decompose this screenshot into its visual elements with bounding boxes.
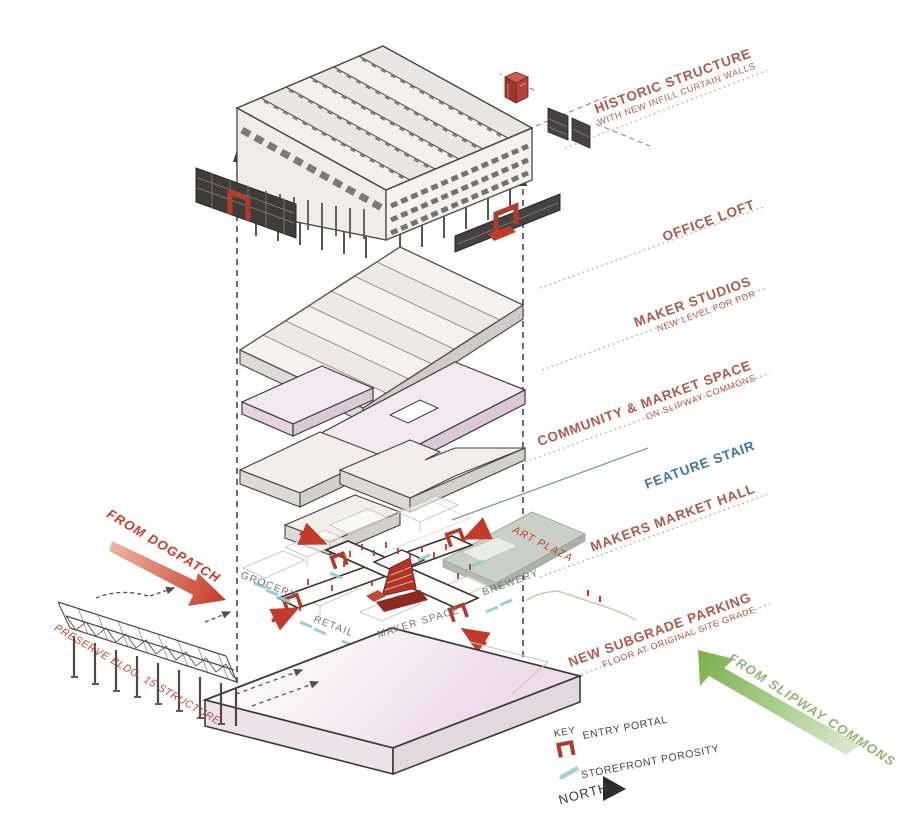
slipway-arrow xyxy=(698,650,860,755)
green-route xyxy=(527,590,636,620)
entry-arrow xyxy=(272,609,296,621)
red-portal-cube xyxy=(505,72,528,103)
legend-entry-portal-icon xyxy=(558,742,573,757)
legend-porosity-icon xyxy=(560,768,578,778)
entry-arrow xyxy=(464,630,486,644)
exploded-axon-diagram: HISTORIC STRUCTURE WITH NEW INFILL CURTA… xyxy=(0,0,910,828)
parking-slab xyxy=(205,628,580,774)
